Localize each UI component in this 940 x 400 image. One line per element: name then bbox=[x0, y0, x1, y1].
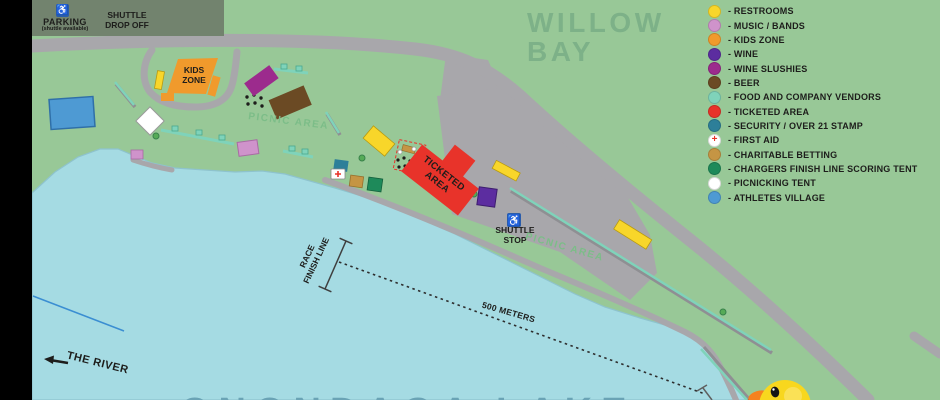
athletes-village-marker bbox=[49, 97, 95, 130]
legend-item: - WINE bbox=[708, 47, 918, 61]
legend-item-label: - FOOD AND COMPANY VENDORS bbox=[728, 92, 881, 102]
athletes-village-legend-icon bbox=[708, 191, 721, 204]
legend-item: - KIDS ZONE bbox=[708, 33, 918, 47]
legend-item: - WINE SLUSHIES bbox=[708, 61, 918, 75]
security-legend-icon bbox=[708, 119, 721, 132]
kids-zone-legend-icon bbox=[708, 33, 721, 46]
chargers-tent-marker bbox=[367, 177, 383, 192]
legend-item-label: - PICNICKING TENT bbox=[728, 178, 816, 188]
legend-item: - FOOD AND COMPANY VENDORS bbox=[708, 90, 918, 104]
legend-item: - RESTROOMS bbox=[708, 4, 918, 18]
legend-item-label: - WINE bbox=[728, 49, 758, 59]
shuttle-dropoff-label: SHUTTLE DROP OFF bbox=[101, 11, 153, 30]
first-aid-legend-icon: + bbox=[708, 134, 721, 147]
legend-item: + - FIRST AID bbox=[708, 133, 918, 147]
wine-legend-icon bbox=[708, 48, 721, 61]
chargers-tent-legend-icon bbox=[708, 162, 721, 175]
charitable-betting-legend-icon bbox=[708, 148, 721, 161]
legend-item-label: - ATHLETES VILLAGE bbox=[728, 193, 825, 203]
restrooms-marker-2 bbox=[363, 126, 395, 156]
kids-zone-small bbox=[161, 93, 174, 101]
legend-item-label: - RESTROOMS bbox=[728, 6, 794, 16]
legend-item: - BEER bbox=[708, 76, 918, 90]
accessible-parking-icon: ♿ bbox=[56, 4, 69, 17]
legend-item-label: - CHARITABLE BETTING bbox=[728, 150, 837, 160]
legend-item: - MUSIC / BANDS bbox=[708, 18, 918, 32]
picnicking-tent-marker bbox=[136, 107, 164, 135]
food-vendors-legend-icon bbox=[708, 91, 721, 104]
parking-sublabel: (shuttle available) bbox=[30, 26, 100, 32]
restrooms-marker-1 bbox=[154, 71, 164, 90]
legend: - RESTROOMS - MUSIC / BANDS - KIDS ZONE … bbox=[708, 4, 918, 205]
legend-item-label: - TICKETED AREA bbox=[728, 107, 809, 117]
music-bands-marker bbox=[237, 140, 259, 157]
wine-slushies-legend-icon bbox=[708, 62, 721, 75]
legend-item-label: - KIDS ZONE bbox=[728, 35, 785, 45]
restrooms-legend-icon bbox=[708, 5, 721, 18]
beer-legend-icon bbox=[708, 76, 721, 89]
legend-item-label: - MUSIC / BANDS bbox=[728, 21, 805, 31]
legend-item: - ATHLETES VILLAGE bbox=[708, 190, 918, 204]
music-bands-legend-icon bbox=[708, 19, 721, 32]
charitable-betting-marker bbox=[349, 175, 363, 188]
wine-marker bbox=[477, 187, 497, 207]
willow-bay-label: WILLOW BAY bbox=[527, 8, 702, 67]
legend-item: - TICKETED AREA bbox=[708, 104, 918, 118]
event-map: ♿ PARKING (shuttle available) SHUTTLE DR… bbox=[0, 0, 940, 400]
first-aid-marker bbox=[331, 169, 345, 179]
rubber-duck-image bbox=[745, 380, 811, 400]
kids-zone-label: KIDS ZONE bbox=[177, 66, 211, 85]
music-bands-marker-2 bbox=[131, 150, 143, 159]
legend-item-label: - CHARGERS FINISH LINE SCORING TENT bbox=[728, 164, 918, 174]
legend-item: - CHARITABLE BETTING bbox=[708, 147, 918, 161]
ticketed-area-legend-icon bbox=[708, 105, 721, 118]
map-left-edge bbox=[0, 0, 32, 400]
legend-item-label: - SECURITY / OVER 21 STAMP bbox=[728, 121, 863, 131]
wine-slushies-marker bbox=[244, 65, 278, 96]
legend-item: - SECURITY / OVER 21 STAMP bbox=[708, 119, 918, 133]
legend-item: - PICNICKING TENT bbox=[708, 176, 918, 190]
picnicking-tent-legend-icon bbox=[708, 177, 721, 190]
legend-item-label: - WINE SLUSHIES bbox=[728, 64, 808, 74]
lake-name-label: ONONDAGA LAKE bbox=[180, 391, 635, 400]
legend-item-label: - BEER bbox=[728, 78, 760, 88]
legend-item-label: - FIRST AID bbox=[728, 135, 779, 145]
legend-item: - CHARGERS FINISH LINE SCORING TENT bbox=[708, 162, 918, 176]
